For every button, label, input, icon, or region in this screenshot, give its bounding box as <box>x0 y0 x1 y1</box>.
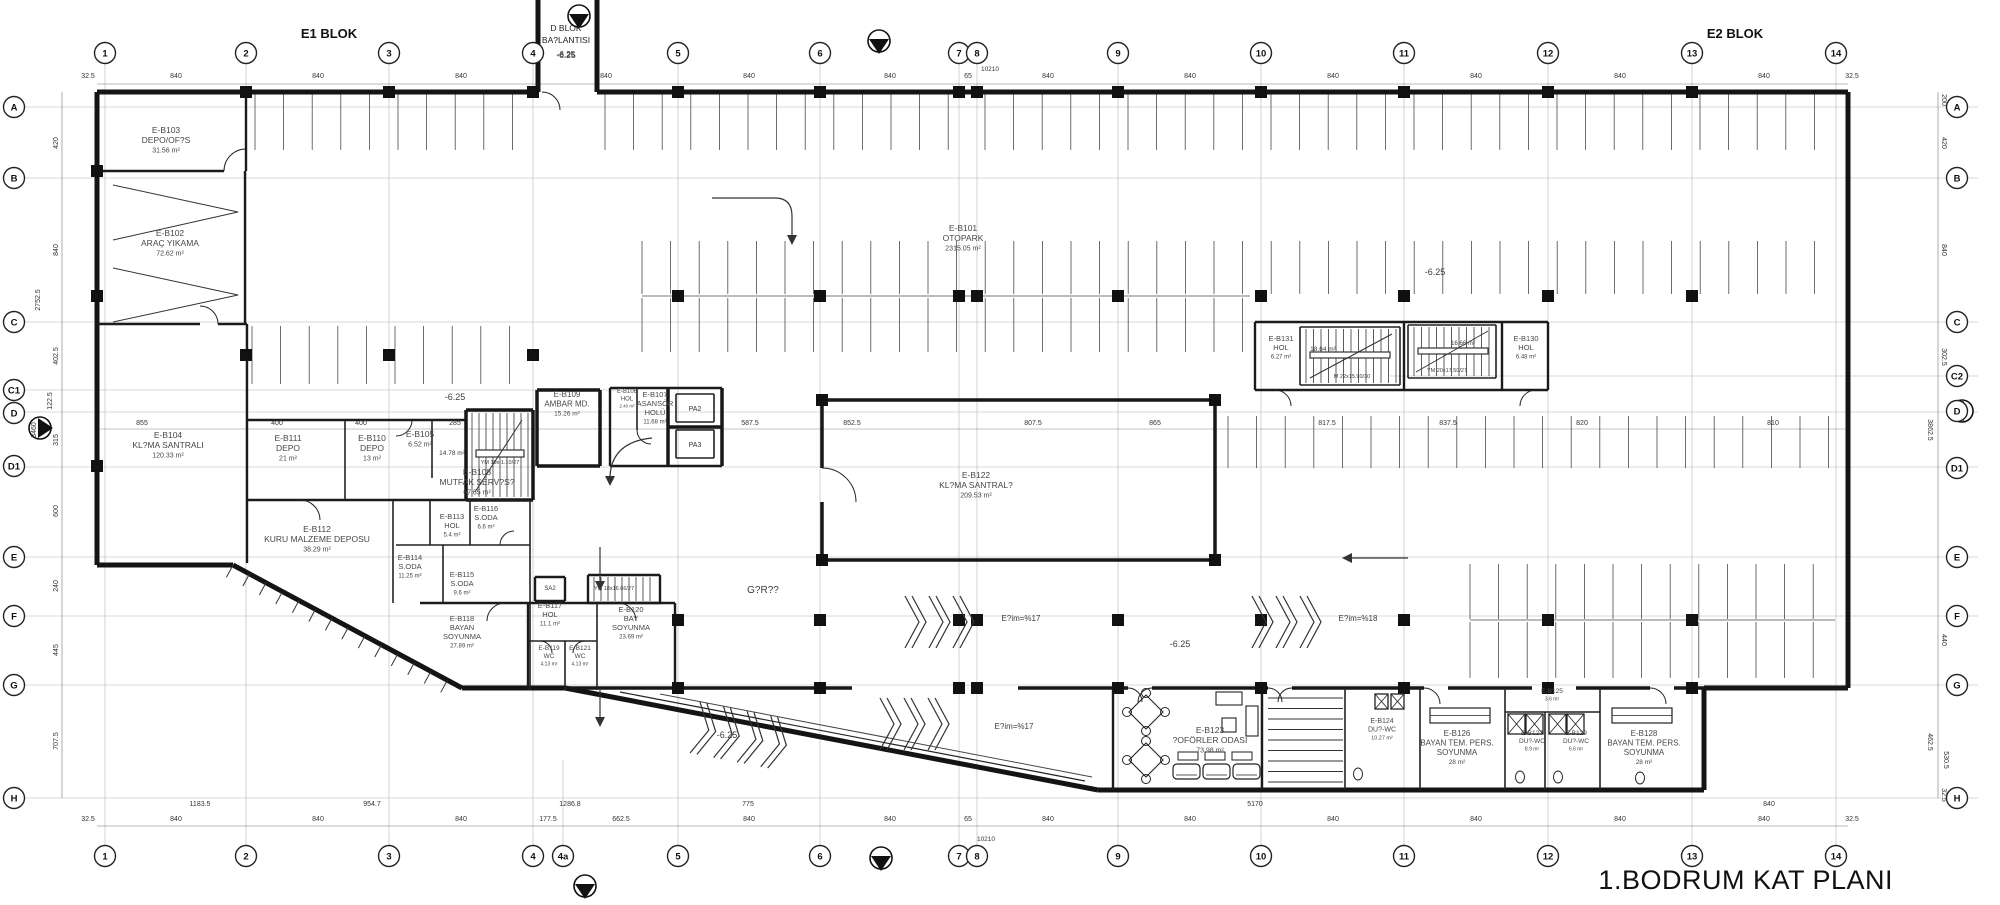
room-label-name: DEPO/OF?S <box>142 135 191 145</box>
room-label-name: SOYUNMA <box>443 632 481 641</box>
grid-bubble-label: 7 <box>956 49 961 60</box>
annotation-label: G?R?? <box>747 585 779 596</box>
room-label-area: 6.6 m² <box>1569 747 1584 753</box>
dim-label: 840 <box>312 73 324 80</box>
room-label-name: BAYAN TEM. PERS. <box>1420 739 1493 748</box>
room-label-id: E-B130 <box>1513 334 1538 343</box>
room-label-area: 38.29 m² <box>303 547 331 554</box>
block-label-d-2: BA?LANTISI <box>542 35 590 45</box>
door-arc <box>542 92 560 110</box>
room-label-area: 21 m² <box>279 456 298 463</box>
dim-label: 840 <box>743 816 755 823</box>
dim-label: 840 <box>455 816 467 823</box>
chair <box>1123 708 1132 717</box>
grid-bubble-label: 10 <box>1256 852 1267 863</box>
column <box>1209 554 1221 566</box>
room-label-id: E-B112 <box>303 524 331 534</box>
grid-bubble-label: E <box>1954 553 1960 564</box>
diagonal-wall-hatch <box>325 618 332 630</box>
dim-label: 837.5 <box>1439 420 1457 427</box>
dim-label: 840 <box>1758 73 1770 80</box>
dim-label: 200 <box>1940 94 1947 106</box>
column <box>91 460 103 472</box>
room-label-name: KL?MA SANTRAL? <box>939 480 1013 490</box>
dim-label: 840 <box>884 73 896 80</box>
room-label-name: SOYUNMA <box>1624 748 1665 757</box>
lane-arrow-head <box>787 235 797 245</box>
column <box>953 682 965 694</box>
dim-label: 840 <box>170 73 182 80</box>
room-label-id: E-B107 <box>642 390 667 399</box>
annotation-label: -6.25 <box>1425 267 1446 277</box>
room-label-id: E-B110 <box>358 433 386 443</box>
dim-label: 530.5 <box>1942 751 1949 769</box>
dim-label: 32.5 <box>1845 73 1859 80</box>
diagonal-wall-hatch <box>441 680 448 692</box>
dim-label: 840 <box>1940 244 1947 256</box>
annotation-label: YM 18x16.66/27 <box>594 586 634 592</box>
dim-label: 177.5 <box>539 816 557 823</box>
annotation-label: YM 20x17.50/27 <box>1427 368 1467 374</box>
grid-bubble-label: 3 <box>386 49 391 60</box>
annotation-label: -6.25 <box>557 50 576 59</box>
room-label-id: E-B125 <box>1541 688 1563 695</box>
grid-bubble-label: C <box>1954 318 1961 329</box>
grid-bubble-label: 6 <box>817 49 822 60</box>
room-label-name: DU?-WC <box>1519 738 1545 745</box>
annotation-label: -6.25 <box>717 730 738 740</box>
lane-arrow-head <box>605 476 615 486</box>
diagonal-wall-hatch <box>276 592 283 604</box>
room-label-name: HOLÜ <box>645 408 666 417</box>
column <box>672 682 684 694</box>
annotation-label: -6.25 <box>445 392 466 402</box>
room-label-name: S.ODA <box>474 513 497 522</box>
table <box>1129 695 1163 729</box>
room-label-id: E-B131 <box>1268 334 1293 343</box>
grid-bubble-label: 13 <box>1687 852 1698 863</box>
door-arc <box>500 531 514 545</box>
dim-label: 840 <box>1042 73 1054 80</box>
room-label-id: E-B116 <box>474 504 498 513</box>
room-label-id: E-B114 <box>398 553 422 562</box>
sofa <box>1233 764 1260 779</box>
room-label-name: SOYUNMA <box>1437 748 1478 757</box>
column <box>816 554 828 566</box>
grid-bubble-label: F <box>1954 612 1960 623</box>
dim-label: 400 <box>271 420 283 427</box>
room-label-area: 10.27 m² <box>1371 736 1393 742</box>
door-arc <box>200 306 218 324</box>
dim-label: 462.5 <box>1926 733 1933 751</box>
room-label-id: E-B129 <box>1565 730 1587 737</box>
column <box>971 290 983 302</box>
column <box>1255 86 1267 98</box>
room-label-area: 13 m² <box>363 456 382 463</box>
section-marker-icon <box>868 30 890 54</box>
grid-bubble-label: 4 <box>530 49 536 60</box>
room-label-id: E-B115 <box>450 570 474 579</box>
door-arc <box>1278 688 1292 702</box>
grid-bubble-label: 11 <box>1399 49 1410 60</box>
door-arc <box>300 500 320 520</box>
floor-plan-canvas: E1 BLOK E2 BLOK D BLOK BA?LANTISI -6.25 … <box>0 0 2000 905</box>
table <box>1129 743 1163 777</box>
room-label-name: BAYAN <box>450 623 474 632</box>
room-label-area: 73.98 m² <box>1196 748 1224 755</box>
annotation-label: E?im=%17 <box>995 722 1034 731</box>
dim-label: 840 <box>1042 816 1054 823</box>
chair <box>1161 708 1170 717</box>
room-label-id: E-B120 <box>618 605 643 614</box>
chair <box>1161 756 1170 765</box>
section-marker-icon <box>870 847 892 871</box>
dim-label: 840 <box>1327 73 1339 80</box>
dim-label: 1286.8 <box>559 801 581 808</box>
dim-label: 65 <box>964 816 972 823</box>
column <box>1112 614 1124 626</box>
column <box>672 614 684 626</box>
column <box>1686 86 1698 98</box>
grid-bubble-label: H <box>11 794 18 805</box>
grid-bubble-label: D <box>11 409 18 420</box>
block-label-e1: E1 BLOK <box>301 26 358 41</box>
room-label-name: KURU MALZEME DEPOSU <box>264 534 370 544</box>
room-label-area: 15.26 m² <box>554 411 580 418</box>
room-label-area: 6.6 m² <box>477 525 494 531</box>
dim-label: 852.5 <box>843 420 861 427</box>
grid-bubble-label: 3 <box>386 852 391 863</box>
dim-label: 587.5 <box>741 420 759 427</box>
dim-label: 420 <box>53 137 60 149</box>
grid-bubble-label: G <box>1953 681 1960 692</box>
room-label-name: BAY <box>624 614 638 623</box>
room-label-name: HOL <box>621 397 634 403</box>
chair <box>1142 737 1151 746</box>
room-label-name: S.ODA <box>398 562 421 571</box>
room-label-name: OTOPARK <box>943 233 984 243</box>
grid-bubble-label: 12 <box>1543 49 1554 60</box>
column <box>527 86 539 98</box>
dim-label: 807.5 <box>1024 420 1042 427</box>
column <box>1686 290 1698 302</box>
elevator-label-pa3: PA3 <box>689 442 702 449</box>
chair <box>1142 775 1151 784</box>
diagonal-wall-hatch <box>358 636 365 648</box>
grid-bubble-label: 4a <box>558 852 569 863</box>
ramp-edge <box>620 692 1085 781</box>
room-label-area: 27.89 m² <box>450 644 474 650</box>
grid-bubble-label: E <box>11 553 17 564</box>
room-label-name: ARAÇ YIKAMA <box>141 238 199 248</box>
diagonal-wall-hatch <box>309 609 316 621</box>
dim-label: 32.5 <box>81 73 95 80</box>
grid-bubble-label: 2 <box>243 852 248 863</box>
grid-bubble-label: 5 <box>675 852 681 863</box>
dim-label: 2752.5 <box>35 289 42 311</box>
grid-bubble-label: 9 <box>1115 852 1120 863</box>
door-arc <box>1650 688 1666 704</box>
grid-bubble-label: B <box>11 174 18 185</box>
dim-label: 402.5 <box>53 347 60 365</box>
room-label-name: MUTFAK SERV?S? <box>440 477 515 487</box>
chair <box>1123 756 1132 765</box>
sofa <box>1173 764 1200 779</box>
column <box>1686 682 1698 694</box>
grid-bubble-label: A <box>1954 103 1961 114</box>
room-label-name: ASANSÖR <box>637 399 674 408</box>
column <box>240 349 252 361</box>
column <box>1112 682 1124 694</box>
dim-label: 840 <box>884 816 896 823</box>
room-label-id: E-B118 <box>450 614 474 623</box>
dim-top-total: 10210 <box>981 66 999 73</box>
dim-label: 122.5 <box>47 392 54 410</box>
dim-label: 817.5 <box>1318 420 1336 427</box>
column <box>1112 290 1124 302</box>
dim-label: 32.5 <box>81 816 95 823</box>
dim-label: 302.5 <box>1940 348 1947 366</box>
dim-label: 440 <box>1940 634 1947 646</box>
grid-bubble-label: 1 <box>102 49 108 60</box>
column <box>814 614 826 626</box>
room-label-id: E-B105 <box>406 429 435 439</box>
dim-label: 775 <box>742 801 754 808</box>
room-label-id: E-B127 <box>1521 730 1543 737</box>
room-label-area: 2.40 m² <box>619 404 635 409</box>
column <box>814 290 826 302</box>
door-arc <box>224 149 246 171</box>
cabinet <box>1216 692 1242 705</box>
dim-label: 820 <box>1576 420 1588 427</box>
column <box>91 290 103 302</box>
room-label-id: E-B123 <box>1196 725 1225 735</box>
grid-bubble-label: 10 <box>1256 49 1267 60</box>
column <box>383 86 395 98</box>
dim-label: 840 <box>1470 816 1482 823</box>
room-label-name: ?OFÖRLER ODASI <box>1173 735 1248 745</box>
column <box>1112 86 1124 98</box>
toilet-fixture <box>1516 771 1525 783</box>
room-label-area: 209.53 m² <box>960 493 992 500</box>
room-label-id: E-B119 <box>538 645 560 652</box>
dim-label: 315 <box>53 434 60 446</box>
room-label-id: E-B101 <box>949 223 978 233</box>
shaft-label-sa2: SA2 <box>544 586 556 592</box>
dim-label: 3862.5 <box>1926 419 1933 441</box>
column <box>527 349 539 361</box>
room-label-id: E-B121 <box>569 645 591 652</box>
room-label-area: 31.56 m² <box>152 148 180 155</box>
diagonal-wall-hatch <box>292 600 299 612</box>
room-label-name: WC <box>544 653 555 660</box>
room-label-id: E-B106 <box>617 389 638 395</box>
dim-label: 285 <box>449 420 461 427</box>
diagonal-wall-hatch <box>259 583 266 595</box>
room-label-area: 2315.05 m² <box>945 246 981 253</box>
side-table <box>1178 752 1198 760</box>
toilet-fixture <box>1554 771 1563 783</box>
grid-bubble-label: 7 <box>956 852 961 863</box>
grid-bubble-label: 14 <box>1831 49 1842 60</box>
dim-label: 840 <box>743 73 755 80</box>
grid-bubble-label: C1 <box>8 386 21 397</box>
diagonal-wall-hatch <box>342 627 349 639</box>
grid-bubble-label: C2 <box>1951 372 1963 383</box>
dim-label: 32.5 <box>1845 816 1859 823</box>
dim-label: 662.5 <box>612 816 630 823</box>
grid-bubble-label: 2 <box>243 49 248 60</box>
column <box>1542 86 1554 98</box>
grid-bubble-label: 6 <box>817 852 822 863</box>
door-arc <box>1275 390 1291 406</box>
annotation-label: 18.64 m² <box>1310 346 1336 353</box>
toilet-fixture <box>1354 768 1363 780</box>
dim-label: 840 <box>455 73 467 80</box>
room-label-name: DEPO <box>360 443 384 453</box>
room-label-name: KL?MA SANTRALI <box>132 440 203 450</box>
ramp-chevrons <box>880 698 949 750</box>
grid-bubble-label: 1 <box>102 852 108 863</box>
column <box>971 86 983 98</box>
dim-label: 840 <box>1470 73 1482 80</box>
room-label-area: 23.69 m² <box>619 635 643 641</box>
annotation-label: 14.78 m² <box>439 450 465 457</box>
room-label-id: E-B109 <box>554 390 581 399</box>
dim-label: 840 <box>312 816 324 823</box>
dim-label: 420 <box>1940 137 1947 149</box>
dim-label: 855 <box>136 420 148 427</box>
outer-wall <box>565 688 1098 790</box>
dim-label: 707.5 <box>53 732 60 750</box>
dim-label: 810 <box>1767 420 1779 427</box>
dim-label: 240 <box>53 580 60 592</box>
column <box>1686 614 1698 626</box>
ramp-chevron-path <box>880 698 949 750</box>
dim-label: 840 <box>1763 801 1775 808</box>
column <box>816 394 828 406</box>
column <box>240 86 252 98</box>
column <box>1398 290 1410 302</box>
room-label-id: E-B111 <box>274 433 301 443</box>
grid-bubble-label: 12 <box>1543 852 1554 863</box>
room-label-area: 11.68 m² <box>643 420 666 426</box>
room-label-name: SOYUNMA <box>612 623 650 632</box>
room-label-area: 11.25 m² <box>398 574 421 580</box>
room-label-area: 72.62 m² <box>156 251 184 258</box>
door-arc <box>822 468 856 502</box>
room-label-id: E-B122 <box>962 470 991 480</box>
grid-bubble-label: 13 <box>1687 49 1698 60</box>
cabinet <box>1246 706 1258 736</box>
grid-bubble-label: 9 <box>1115 49 1120 60</box>
room-label-name: S.ODA <box>450 579 473 588</box>
dim-label: 840 <box>600 73 612 80</box>
room-label-area: 28 m² <box>1636 759 1653 766</box>
room-label-id: E-B128 <box>1631 729 1658 738</box>
grid-bubble-label: D1 <box>8 462 21 473</box>
room-label-name: HOL <box>1273 343 1288 352</box>
room-label-name: HOL <box>542 610 557 619</box>
column <box>953 290 965 302</box>
dim-label: 65 <box>964 73 972 80</box>
room-label-name: DU?-WC <box>1563 738 1589 745</box>
room-label-id: E-B126 <box>1444 729 1471 738</box>
grid-bubble-label: F <box>11 612 17 623</box>
room-label-id: E-B108 <box>463 467 492 477</box>
grid-bubble-label: H <box>1954 794 1961 805</box>
diagonal-wall-hatch <box>375 645 382 657</box>
room-label-id: E-B113 <box>440 512 464 521</box>
column <box>672 86 684 98</box>
lane-arrow <box>712 198 792 235</box>
column <box>1398 86 1410 98</box>
chair <box>1142 727 1151 736</box>
grid-bubble-label: 14 <box>1831 852 1842 863</box>
annotation-label: E?im=%17 <box>1002 614 1041 623</box>
column <box>1209 394 1221 406</box>
annotation-label: E?im=%18 <box>1339 614 1378 623</box>
column <box>91 165 103 177</box>
dim-label: 1183.5 <box>190 801 211 808</box>
column <box>1398 682 1410 694</box>
column <box>814 86 826 98</box>
dim-label: 954.7 <box>363 801 381 808</box>
room-label-name: AMBAR MD. <box>544 400 589 409</box>
column <box>953 86 965 98</box>
annotation-label: 16.66 m² <box>1451 341 1475 347</box>
dim-label: 400 <box>355 420 367 427</box>
dim-label: 840 <box>1614 816 1626 823</box>
grid-bubble-label: 11 <box>1399 852 1410 863</box>
room-label-area: 8.9 m² <box>1525 747 1540 753</box>
dim-label: 600 <box>53 505 60 517</box>
room-label-area: 11.1 m² <box>540 622 560 628</box>
door-arc <box>637 430 651 444</box>
section-marker-icon <box>574 875 596 899</box>
dim-label: 445 <box>53 644 60 656</box>
room-label-id: E-B104 <box>154 430 183 440</box>
room-label-area: 3.6 m² <box>1545 697 1560 703</box>
room-label-area: 28 m² <box>1449 759 1466 766</box>
grid-bubble-label: 8 <box>974 852 979 863</box>
grid-bubble-label: D <box>1954 407 1961 418</box>
room-label-name: DEPO <box>276 443 300 453</box>
sofa <box>1203 764 1230 779</box>
room-label-area: 6.52 m² <box>408 442 432 449</box>
grid-bubble-label: 5 <box>675 49 681 60</box>
annotation-label: M 22x15.90/30 <box>1334 374 1370 380</box>
room-label-area: 4.13 m² <box>572 662 589 668</box>
room-label-id: E-B103 <box>152 125 181 135</box>
room-label-area: 4.13 m² <box>541 662 558 668</box>
door-arc <box>487 603 505 621</box>
floor-plan-sheet: E1 BLOK E2 BLOK D BLOK BA?LANTISI -6.25 … <box>0 0 2000 905</box>
dim-label: 32.5 <box>1940 788 1947 802</box>
room-label-name: WC <box>575 653 586 660</box>
room-label-name: BAYAN TEM. PERS. <box>1607 739 1680 748</box>
room-label-area: 67.65 m² <box>463 490 491 497</box>
dim-bottom-total: 10210 <box>977 836 995 843</box>
grid-bubble-label: A <box>11 103 18 114</box>
room-label-area: 6.27 m² <box>1271 355 1291 361</box>
lane-arrow-head <box>595 717 605 727</box>
door-arc <box>1424 688 1440 704</box>
dim-label: 3460 <box>31 422 38 438</box>
column <box>383 349 395 361</box>
lane-arrow <box>610 438 652 476</box>
outer-wall <box>233 565 462 688</box>
